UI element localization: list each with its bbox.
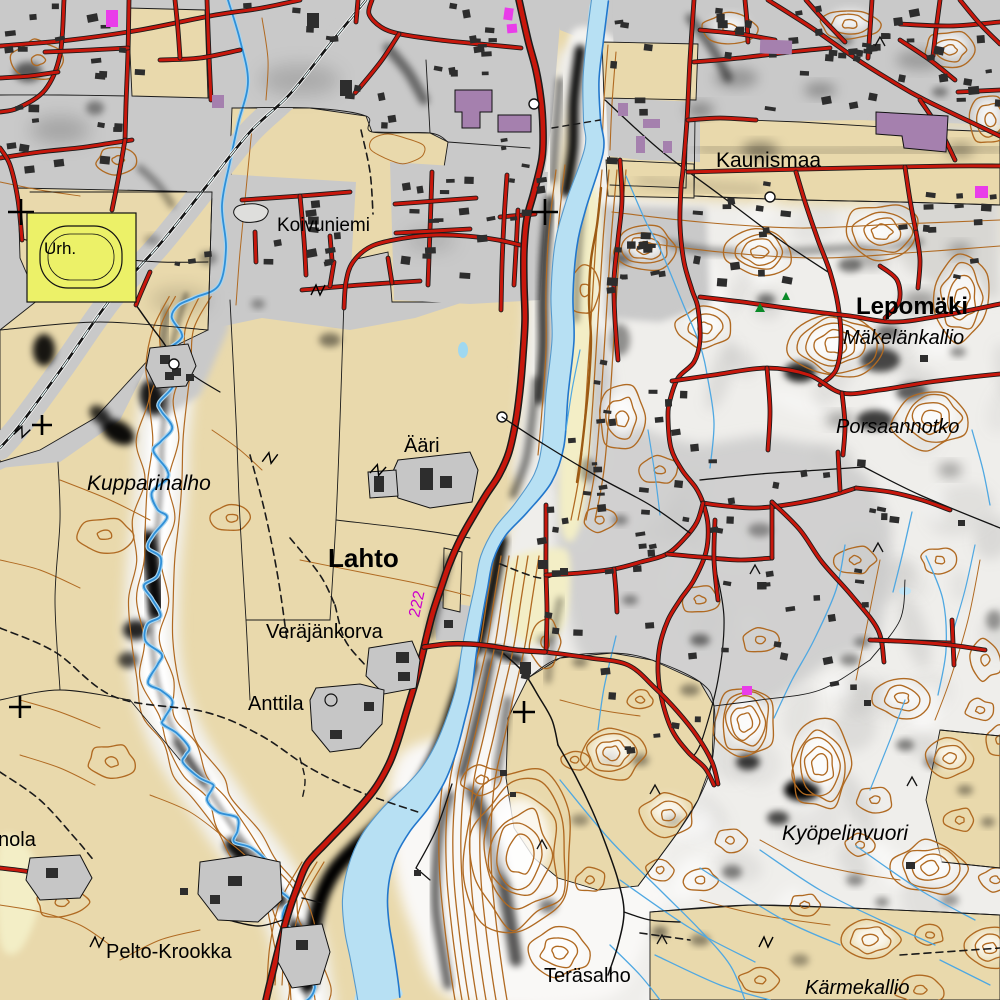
svg-text:Porsaannotko: Porsaannotko: [836, 416, 959, 438]
svg-text:Anttila: Anttila: [248, 693, 304, 715]
svg-text:Pelto-Krookka: Pelto-Krookka: [106, 941, 232, 963]
svg-text:Koivuniemi: Koivuniemi: [277, 215, 370, 236]
svg-text:nola: nola: [0, 829, 37, 851]
svg-text:Lepomäki: Lepomäki: [856, 293, 968, 320]
svg-text:Urh.: Urh.: [44, 239, 76, 258]
svg-text:Kaunismaa: Kaunismaa: [716, 149, 821, 172]
svg-text:Mäkelänkallio: Mäkelänkallio: [843, 327, 964, 349]
svg-text:Kupparinalho: Kupparinalho: [87, 472, 211, 495]
svg-text:Veräjänkorva: Veräjänkorva: [266, 621, 384, 643]
svg-text:Lahto: Lahto: [328, 543, 399, 573]
svg-text:Teräsalho: Teräsalho: [544, 965, 631, 987]
svg-text:Kärmekallio: Kärmekallio: [805, 977, 909, 999]
svg-text:Kyöpelinvuori: Kyöpelinvuori: [782, 822, 909, 845]
svg-text:Ääri: Ääri: [404, 435, 440, 457]
